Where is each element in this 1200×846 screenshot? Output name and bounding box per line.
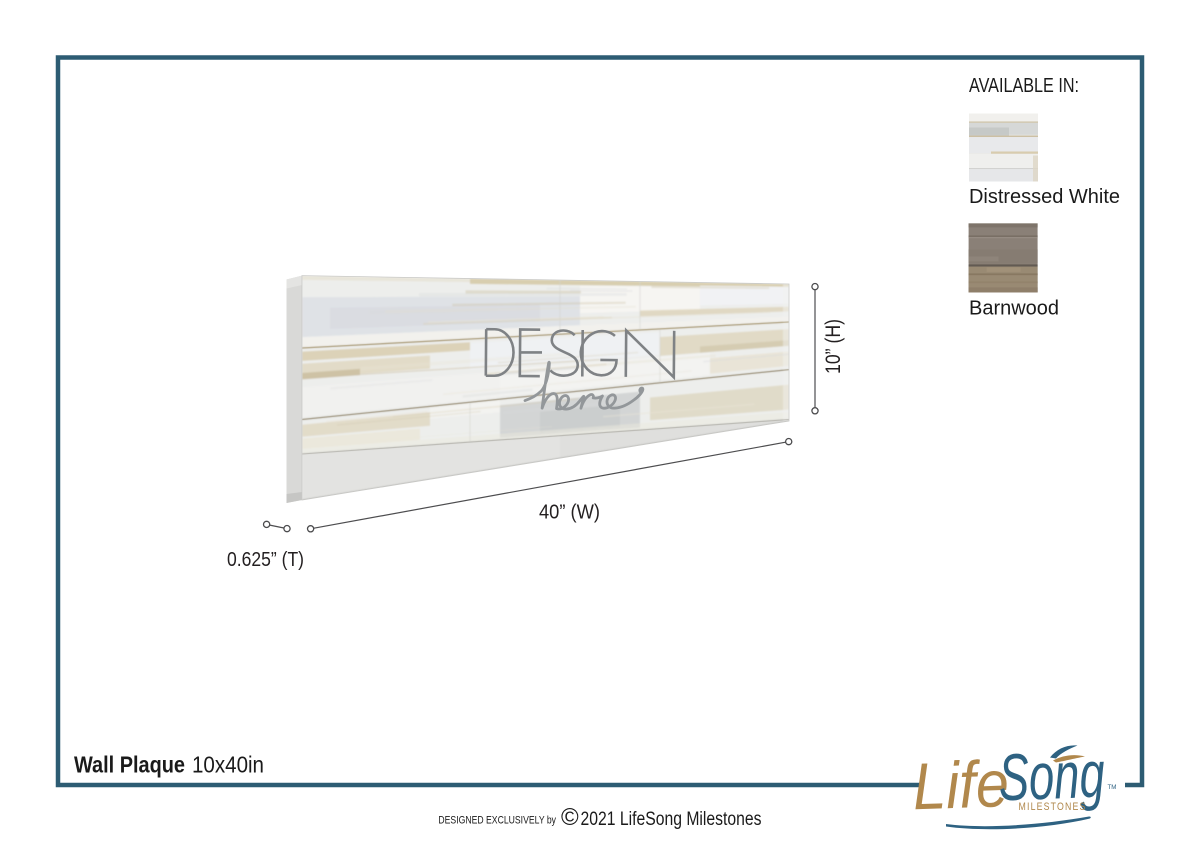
svg-text:Barnwood: Barnwood <box>969 296 1059 319</box>
svg-text:Wall Plaque10x40in: Wall Plaque10x40in <box>74 752 264 778</box>
svg-text:DESIGNED EXCLUSIVELY by: DESIGNED EXCLUSIVELY by <box>438 815 556 827</box>
svg-text:Life: Life <box>912 746 1011 823</box>
svg-text:MILESTONES: MILESTONES <box>1019 801 1087 813</box>
svg-text:10” (H): 10” (H) <box>821 319 845 374</box>
svg-text:0.625” (T): 0.625” (T) <box>227 548 304 571</box>
svg-text:2021 LifeSong Milestones: 2021 LifeSong Milestones <box>581 808 762 830</box>
svg-text:Distressed White: Distressed White <box>969 185 1120 208</box>
svg-text:AVAILABLE IN:: AVAILABLE IN: <box>969 74 1079 97</box>
svg-text:©: © <box>561 804 579 831</box>
svg-text:40” (W): 40” (W) <box>539 500 600 523</box>
svg-text:TM: TM <box>1108 784 1117 791</box>
